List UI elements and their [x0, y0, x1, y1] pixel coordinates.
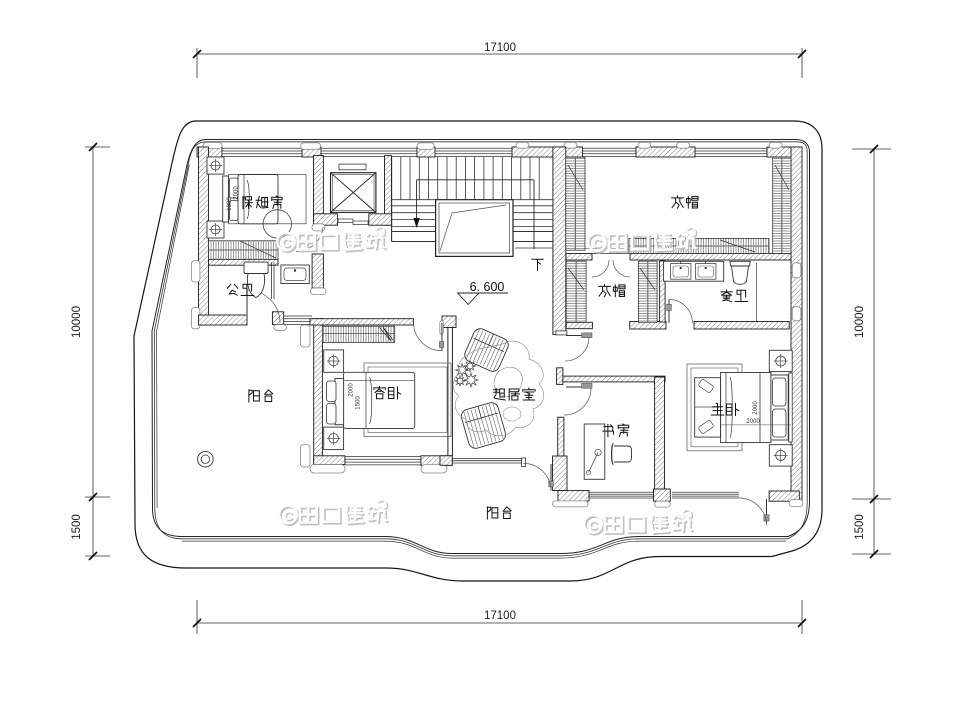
svg-text:2000: 2000 [746, 419, 760, 425]
svg-text:1500: 1500 [854, 514, 866, 540]
svg-text:6. 600: 6. 600 [470, 280, 505, 294]
svg-text:17100: 17100 [484, 42, 516, 54]
svg-text:1500: 1500 [356, 396, 362, 410]
svg-text:10000: 10000 [71, 306, 83, 338]
svg-text:C: C [588, 517, 598, 532]
svg-text:C: C [592, 235, 602, 250]
svg-text:2000: 2000 [234, 186, 240, 200]
svg-text:17100: 17100 [484, 610, 516, 622]
svg-text:1500: 1500 [71, 514, 83, 540]
svg-text:10000: 10000 [854, 306, 866, 338]
svg-text:2000: 2000 [349, 383, 355, 397]
svg-text:C: C [283, 508, 293, 523]
svg-text:2000: 2000 [753, 401, 759, 415]
svg-text:1300: 1300 [227, 197, 233, 211]
svg-text:C: C [281, 235, 291, 250]
